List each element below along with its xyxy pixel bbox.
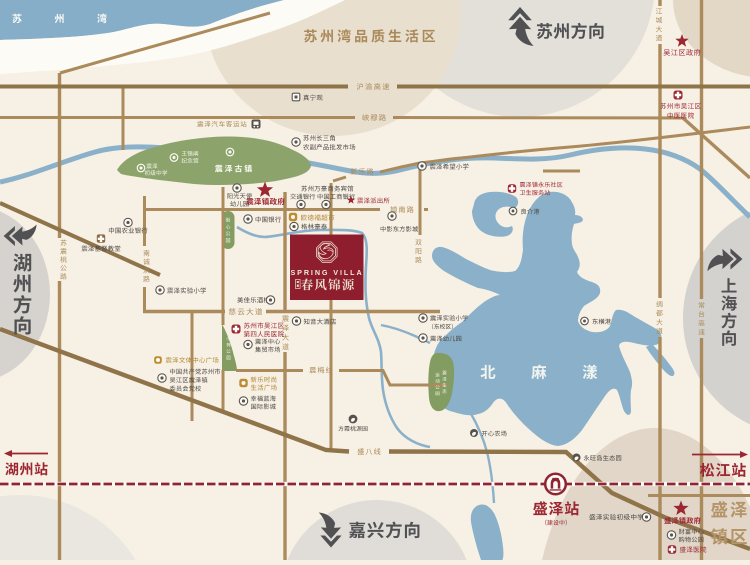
- svg-text:SPRING VILLA: SPRING VILLA: [290, 268, 363, 277]
